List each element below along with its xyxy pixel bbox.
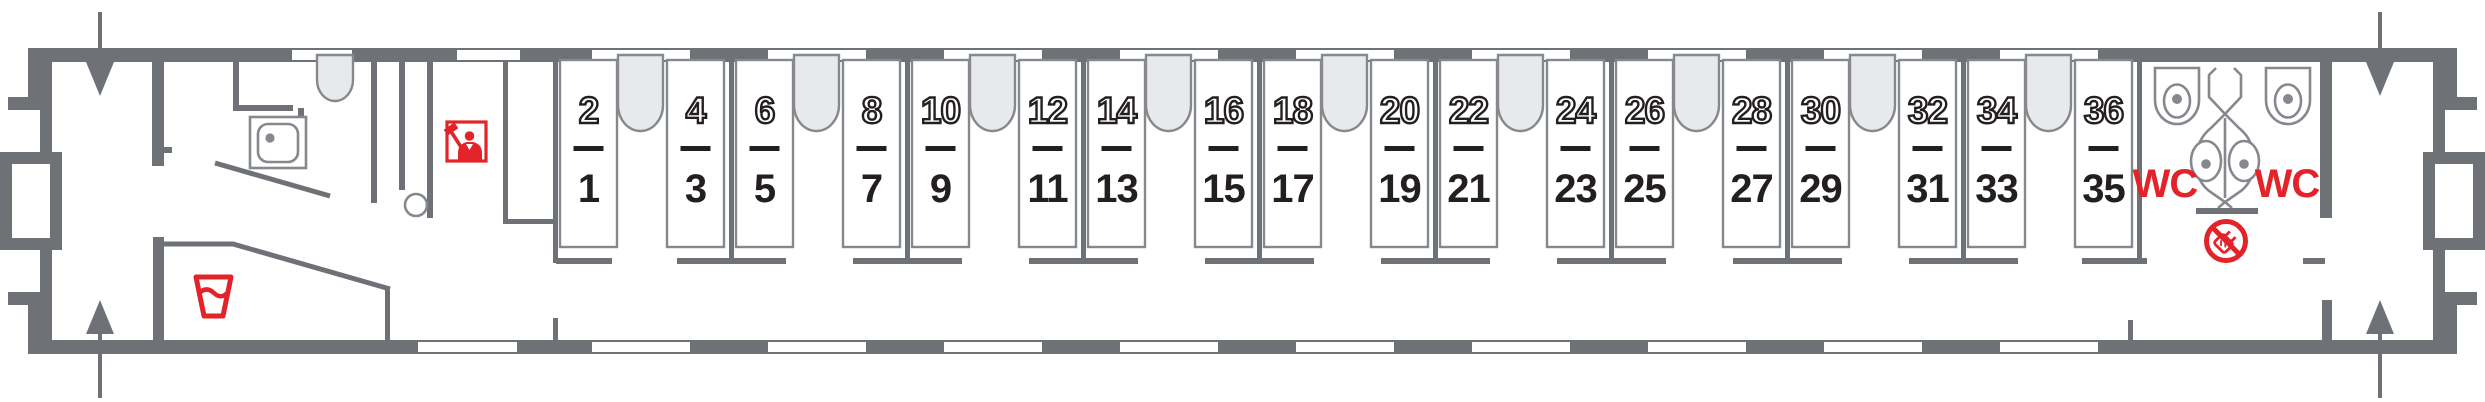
window bbox=[944, 342, 1042, 352]
window bbox=[2000, 342, 2098, 352]
compartment-table bbox=[2026, 55, 2071, 131]
lower-berth-number: 3 bbox=[685, 167, 706, 211]
berth-divider bbox=[1806, 146, 1836, 151]
upper-berth-number: 8 bbox=[862, 90, 882, 131]
berth-cell[interactable] bbox=[1195, 60, 1252, 247]
berth-column-10-9[interactable]: 109 bbox=[912, 60, 969, 247]
conductor-icon bbox=[444, 122, 486, 161]
compartment-table bbox=[1850, 55, 1895, 131]
corridor-wall-segment bbox=[677, 258, 786, 264]
lower-berth-number: 19 bbox=[1378, 167, 1421, 211]
berth-divider bbox=[1454, 146, 1484, 151]
compartment-table bbox=[1498, 55, 1543, 131]
vestibule-wall bbox=[2320, 62, 2332, 218]
upper-berth-number: 34 bbox=[1977, 90, 2018, 131]
berth-column-18-17[interactable]: 1817 bbox=[1264, 60, 1321, 247]
berth-column-6-5[interactable]: 65 bbox=[736, 60, 793, 247]
car-floorplan: 2143658710912111413161518172019222124232… bbox=[0, 0, 2485, 402]
berth-divider bbox=[1209, 146, 1239, 151]
compartment-wall bbox=[1785, 62, 1790, 263]
lower-berth-number: 11 bbox=[1027, 167, 1068, 211]
berth-divider bbox=[750, 146, 780, 151]
lower-berth-number: 17 bbox=[1271, 167, 1314, 211]
berth-column-2-1[interactable]: 21 bbox=[560, 60, 617, 247]
berth-divider bbox=[1033, 146, 1063, 151]
upper-berth-number: 20 bbox=[1380, 90, 1420, 131]
window bbox=[768, 342, 866, 352]
compartment-wall bbox=[1433, 62, 1438, 263]
window bbox=[1472, 342, 1570, 352]
compartment-wall bbox=[553, 62, 558, 263]
vestibule-wall bbox=[153, 237, 164, 340]
berth-cell[interactable] bbox=[1899, 60, 1956, 247]
berth-column-12-11[interactable]: 1211 bbox=[1019, 60, 1076, 247]
window bbox=[1120, 342, 1218, 352]
compartment-wall bbox=[1961, 62, 1966, 263]
berth-column-4-3[interactable]: 43 bbox=[667, 60, 724, 247]
window bbox=[1648, 342, 1746, 352]
corridor-wall-segment bbox=[1205, 258, 1314, 264]
double-washbasin-icon bbox=[2191, 68, 2259, 214]
berth-divider bbox=[1630, 146, 1660, 151]
upper-berth-number: 24 bbox=[1556, 90, 1597, 131]
upper-berth-number: 22 bbox=[1449, 90, 1489, 131]
compartment-table bbox=[1674, 55, 1719, 131]
lower-berth-number: 13 bbox=[1095, 167, 1138, 211]
upper-berth-number: 14 bbox=[1097, 90, 1138, 131]
berth-column-8-7[interactable]: 87 bbox=[843, 60, 900, 247]
upper-berth-number: 30 bbox=[1801, 90, 1841, 131]
berth-divider bbox=[681, 146, 711, 151]
corridor-wall-segment bbox=[853, 258, 962, 264]
compartment-wall bbox=[905, 62, 910, 263]
berth-cell[interactable] bbox=[667, 60, 724, 247]
lower-berth-number: 5 bbox=[754, 167, 776, 211]
upper-berth-number: 12 bbox=[1028, 90, 1068, 131]
wc-right-label: WC bbox=[2255, 162, 2320, 206]
corridor-wall-segment bbox=[1381, 258, 1490, 264]
compartment-1: 2143 bbox=[553, 50, 724, 352]
berth-cell[interactable] bbox=[912, 60, 969, 247]
berth-cell[interactable] bbox=[1723, 60, 1780, 247]
upper-berth-number: 26 bbox=[1625, 90, 1665, 131]
berth-cell[interactable] bbox=[843, 60, 900, 247]
berth-column-20-19[interactable]: 2019 bbox=[1371, 60, 1428, 247]
corridor-wall-segment bbox=[1557, 258, 1666, 264]
berth-cell[interactable] bbox=[1088, 60, 1145, 247]
berth-divider bbox=[1982, 146, 2012, 151]
compartments: 2143658710912111413161518172019222124232… bbox=[553, 50, 2137, 352]
berth-column-22-21[interactable]: 2221 bbox=[1440, 60, 1497, 247]
compartment-table bbox=[794, 55, 839, 131]
crossed-plug-icon bbox=[2207, 222, 2246, 261]
train-car-scheme: 2143658710912111413161518172019222124232… bbox=[0, 0, 2485, 402]
berth-divider bbox=[1385, 146, 1415, 151]
berth-cell[interactable] bbox=[1264, 60, 1321, 247]
corridor-wall-segment bbox=[1909, 258, 2018, 264]
berth-column-32-31[interactable]: 3231 bbox=[1899, 60, 1956, 247]
lower-berth-number: 7 bbox=[861, 167, 882, 211]
stool-icon bbox=[405, 194, 427, 216]
corridor-wall-segment bbox=[556, 258, 612, 264]
berth-cell[interactable] bbox=[1440, 60, 1497, 247]
berth-divider bbox=[1561, 146, 1591, 151]
vestibule-wall bbox=[2322, 300, 2332, 340]
upper-berth-number: 2 bbox=[579, 90, 599, 131]
berth-cell[interactable] bbox=[560, 60, 617, 247]
berth-cell[interactable] bbox=[1019, 60, 1076, 247]
berth-column-26-25[interactable]: 2625 bbox=[1616, 60, 1673, 247]
corridor-wall-segment bbox=[1029, 258, 1138, 264]
window bbox=[1824, 342, 1922, 352]
berth-column-14-13[interactable]: 1413 bbox=[1088, 60, 1145, 247]
berth-cell[interactable] bbox=[1547, 60, 1604, 247]
berth-divider bbox=[1737, 146, 1767, 151]
compartment-table bbox=[618, 55, 663, 131]
corridor-wall-segment bbox=[1733, 258, 1842, 264]
compartment-wall bbox=[729, 62, 734, 263]
toilet-icon bbox=[2155, 68, 2199, 124]
compartment-table bbox=[970, 55, 1015, 131]
upper-berth-number: 18 bbox=[1273, 90, 1313, 131]
lower-berth-number: 27 bbox=[1730, 167, 1773, 211]
toilet-icon bbox=[2266, 68, 2310, 124]
window bbox=[418, 342, 517, 352]
upper-berth-number: 28 bbox=[1732, 90, 1772, 131]
lower-berth-number: 31 bbox=[1906, 167, 1949, 211]
upper-berth-number: 36 bbox=[2084, 90, 2124, 131]
drinking-water-cup-icon bbox=[196, 277, 231, 316]
car-end-right bbox=[2423, 48, 2485, 354]
berth-cell[interactable] bbox=[1968, 60, 2025, 247]
lower-berth-number: 33 bbox=[1975, 167, 2018, 211]
berth-divider bbox=[1102, 146, 1132, 151]
upper-berth-number: 32 bbox=[1908, 90, 1948, 131]
berth-column-34-33[interactable]: 3433 bbox=[1968, 60, 2025, 247]
washbasin-icon bbox=[250, 117, 306, 168]
upper-berth-number: 16 bbox=[1204, 90, 1244, 131]
boiler-table bbox=[317, 55, 353, 101]
berth-cell[interactable] bbox=[1616, 60, 1673, 247]
window bbox=[592, 342, 690, 352]
lower-berth-number: 9 bbox=[930, 167, 951, 211]
car-end-left bbox=[0, 48, 62, 354]
berth-cell[interactable] bbox=[2075, 60, 2132, 247]
upper-berth-number: 10 bbox=[921, 90, 961, 131]
lower-berth-number: 1 bbox=[578, 167, 600, 211]
berth-divider bbox=[574, 146, 604, 151]
upper-berth-number: 4 bbox=[686, 90, 707, 131]
upper-berth-number: 6 bbox=[755, 90, 775, 131]
berth-column-36-35[interactable]: 3635 bbox=[2075, 60, 2132, 247]
compartment-wall bbox=[1257, 62, 1262, 263]
lower-berth-number: 29 bbox=[1799, 167, 1842, 211]
berth-cell[interactable] bbox=[1792, 60, 1849, 247]
service-area bbox=[152, 55, 558, 340]
corridor-wall-segment bbox=[2082, 258, 2137, 264]
compartment-table bbox=[1322, 55, 1367, 131]
window bbox=[1296, 342, 1394, 352]
berth-column-16-15[interactable]: 1615 bbox=[1195, 60, 1252, 247]
berth-divider bbox=[1913, 146, 1943, 151]
compartment-wall bbox=[1081, 62, 1086, 263]
berth-cell[interactable] bbox=[1371, 60, 1428, 247]
berth-divider bbox=[1278, 146, 1308, 151]
lower-berth-number: 35 bbox=[2082, 167, 2125, 211]
berth-column-28-27[interactable]: 2827 bbox=[1723, 60, 1780, 247]
compartment-table bbox=[1146, 55, 1191, 131]
berth-column-24-23[interactable]: 2423 bbox=[1547, 60, 1604, 247]
berth-column-30-29[interactable]: 3029 bbox=[1792, 60, 1849, 247]
lower-berth-number: 25 bbox=[1623, 167, 1666, 211]
lower-berth-number: 21 bbox=[1447, 167, 1490, 211]
berth-divider bbox=[857, 146, 887, 151]
compartment-wall bbox=[1609, 62, 1614, 263]
lower-berth-number: 23 bbox=[1554, 167, 1597, 211]
vestibule-wall bbox=[152, 62, 164, 166]
berth-divider bbox=[2089, 146, 2119, 151]
berth-cell[interactable] bbox=[736, 60, 793, 247]
wc-left-label: WC bbox=[2133, 162, 2198, 206]
berth-divider bbox=[926, 146, 956, 151]
lower-berth-number: 15 bbox=[1202, 167, 1245, 211]
window bbox=[457, 50, 520, 60]
